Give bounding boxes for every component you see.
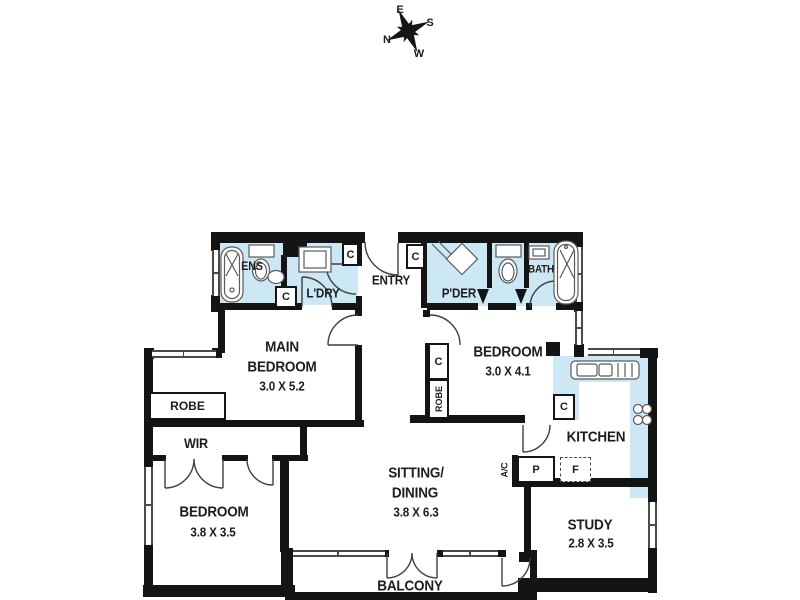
wir-double-door-swing [165,459,223,488]
bedroom2-door-swing [430,315,460,345]
cupboard-label: C [435,356,443,368]
window [152,350,216,358]
cupboard-box-laundry: C [342,243,359,266]
wall-segment [518,578,657,592]
kitchen-label: KITCHEN [567,430,626,445]
window [575,247,583,302]
wall-segment [222,455,248,461]
main-bedroom-dims: 3.0 X 5.2 [259,380,304,393]
cupboard-box-entry: C [406,244,425,269]
pantry-box: P [517,456,555,483]
compass-south-label: S [426,17,433,29]
balcony-double-door-swing [387,553,437,578]
fridge-label: F [572,464,579,476]
sitting-dining-label-1: SITTING/ [388,466,444,481]
sitting-dining-label-2: DINING [392,486,438,501]
fridge-box: F [560,457,591,482]
wall-segment [574,344,584,357]
window [212,250,220,296]
wall-segment [546,342,560,356]
wall-segment [526,303,532,310]
cupboard-label: C [412,251,420,263]
wall-segment [487,243,492,288]
robe-box-main-bedroom: ROBE [149,392,226,420]
cupboard-box-bedroom2: C [428,343,449,380]
floor-plan: E S N W [0,0,800,600]
entry-door-swing [365,242,398,275]
wall-segment [272,455,308,461]
bedroom3-label: BEDROOM [179,505,248,520]
wall-segment [143,585,295,597]
wall-segment [488,303,516,310]
bedroom3-door-swing [247,459,273,485]
wall-segment [332,303,362,310]
ensuite-label: ENS [241,260,263,272]
kitchen-door-swing [523,425,550,452]
wall-segment [524,487,531,552]
bath-label: BATH [528,265,554,276]
compass-north-label: N [383,34,391,46]
cupboard-box-ensuite: C [275,286,297,308]
wall-segment [530,550,537,580]
entry-label: ENTRY [372,274,410,287]
bedroom3-dims: 3.8 X 3.5 [190,526,235,539]
wall-segment [144,420,364,427]
window [293,550,385,557]
wc-floor [488,240,526,306]
window [575,311,583,345]
wir-label: WIR [184,436,208,450]
wall-segment [427,303,478,310]
ac-label: A/C [501,463,510,478]
compass-west-label: W [414,48,425,60]
compass-east-label: E [396,4,403,16]
balcony-label: BALCONY [377,579,442,594]
window [144,467,153,545]
compass-rose-icon: E S N W [378,1,439,62]
wall-segment [574,232,583,248]
window [648,502,657,548]
wall-segment [144,455,166,461]
wall-segment [218,310,225,353]
main-bedroom-label-2: BEDROOM [247,360,316,375]
cupboard-box-kitchen: C [553,394,575,420]
window [443,550,498,557]
robe-label: ROBE [434,386,444,412]
main-bedroom-door-swing [328,315,358,345]
wall-segment [355,345,362,420]
study-dims: 2.8 X 3.5 [568,537,613,550]
bedroom2-dims: 3.0 X 4.1 [485,365,530,378]
wall-segment [355,310,362,316]
study-label: STUDY [568,518,613,533]
wall-segment [280,455,289,552]
sitting-dining-dims: 3.8 X 6.3 [393,506,438,519]
robe-label: ROBE [170,399,205,413]
wall-segment [300,420,307,457]
bedroom2-label: BEDROOM [473,345,542,360]
cupboard-label: C [282,291,290,303]
main-bedroom-label-1: MAIN [265,340,299,355]
wall-segment [211,232,220,251]
window [588,348,640,356]
powder-label: P'DER [442,287,476,300]
robe-box-bedroom2: ROBE [428,379,449,419]
pantry-label: P [532,464,539,476]
wall-segment [498,550,506,557]
laundry-label: L'DRY [306,287,339,300]
cupboard-label: C [560,401,568,413]
cupboard-label: C [347,249,355,261]
wall-segment [423,310,430,317]
wall-segment [398,232,582,243]
